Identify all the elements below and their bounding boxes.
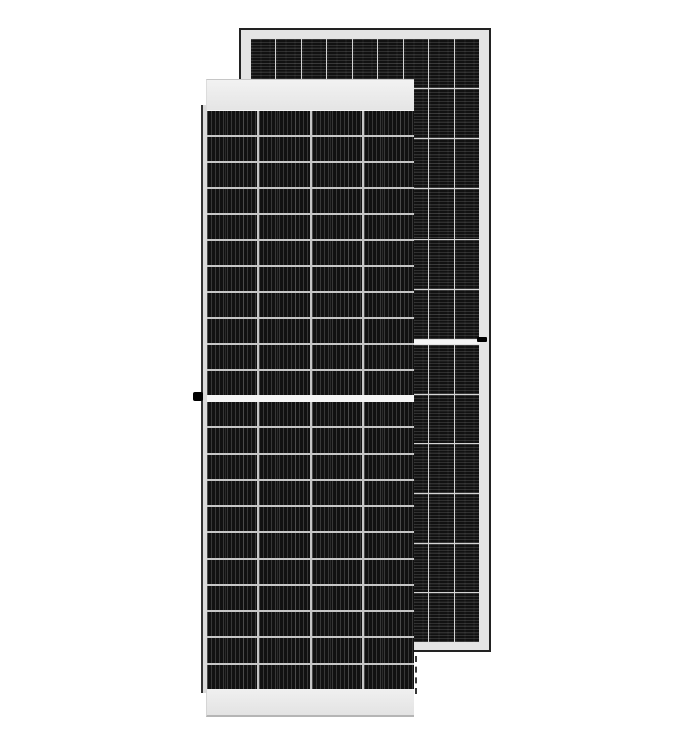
front-solar-panel xyxy=(201,79,414,717)
solar-cell xyxy=(207,560,257,584)
solar-cell xyxy=(259,345,309,369)
solar-cell xyxy=(259,189,309,213)
solar-cell xyxy=(429,139,453,188)
solar-cell xyxy=(429,89,453,138)
solar-cell xyxy=(259,163,309,187)
solar-cell xyxy=(312,371,362,395)
solar-cell xyxy=(364,293,414,317)
solar-cell xyxy=(312,560,362,584)
solar-cell xyxy=(207,319,257,343)
solar-cell xyxy=(207,189,257,213)
solar-cell xyxy=(259,402,309,426)
solar-cell xyxy=(259,507,309,531)
solar-cell xyxy=(364,319,414,343)
solar-cell xyxy=(207,371,257,395)
solar-cell xyxy=(455,189,479,238)
solar-cell xyxy=(259,215,309,239)
solar-cell xyxy=(455,89,479,138)
solar-cell xyxy=(364,481,414,505)
solar-cell xyxy=(364,428,414,452)
solar-cell xyxy=(259,137,309,161)
solar-cell xyxy=(364,241,414,265)
solar-cell xyxy=(312,189,362,213)
solar-cell xyxy=(364,163,414,187)
solar-cell xyxy=(312,586,362,610)
front-panel-lower-half xyxy=(207,402,414,689)
edge-shadow-dashes xyxy=(415,656,417,694)
solar-cell xyxy=(455,345,479,394)
solar-cell xyxy=(259,638,309,662)
solar-cell xyxy=(364,533,414,557)
solar-cell xyxy=(455,39,479,88)
solar-cell xyxy=(312,665,362,689)
solar-cell xyxy=(455,395,479,444)
solar-cell xyxy=(364,215,414,239)
junction-tick-marker xyxy=(477,337,487,342)
grounding-lug-marker xyxy=(193,392,203,401)
solar-cell xyxy=(312,137,362,161)
front-panel-upper-half xyxy=(207,111,414,395)
solar-cell xyxy=(429,544,453,593)
solar-cell xyxy=(312,481,362,505)
solar-cell xyxy=(429,39,453,88)
solar-cell xyxy=(312,163,362,187)
solar-cell xyxy=(312,638,362,662)
solar-cell xyxy=(207,137,257,161)
solar-cell xyxy=(207,455,257,479)
solar-cell xyxy=(312,428,362,452)
solar-cell xyxy=(312,533,362,557)
solar-cell xyxy=(364,665,414,689)
solar-cell xyxy=(207,345,257,369)
solar-cell xyxy=(364,455,414,479)
solar-cell xyxy=(364,638,414,662)
solar-cell xyxy=(207,533,257,557)
solar-cell xyxy=(312,215,362,239)
solar-cell xyxy=(429,240,453,289)
solar-cell xyxy=(429,290,453,339)
solar-cell xyxy=(364,402,414,426)
solar-cell xyxy=(259,481,309,505)
solar-cell xyxy=(259,111,309,135)
solar-cell xyxy=(312,402,362,426)
solar-cell xyxy=(259,455,309,479)
solar-cell xyxy=(207,293,257,317)
solar-cell xyxy=(207,402,257,426)
solar-cell xyxy=(312,612,362,636)
product-photo-canvas xyxy=(0,0,684,748)
solar-cell xyxy=(429,494,453,543)
solar-cell xyxy=(259,665,309,689)
solar-cell xyxy=(455,544,479,593)
solar-cell xyxy=(259,241,309,265)
solar-cell xyxy=(364,111,414,135)
solar-cell xyxy=(207,215,257,239)
solar-cell xyxy=(207,163,257,187)
solar-cell xyxy=(364,137,414,161)
solar-cell xyxy=(364,612,414,636)
solar-cell xyxy=(207,586,257,610)
front-panel-top-frame-rail xyxy=(206,79,414,110)
solar-cell xyxy=(207,638,257,662)
solar-cell xyxy=(259,533,309,557)
solar-cell xyxy=(259,371,309,395)
solar-cell xyxy=(312,267,362,291)
solar-cell xyxy=(455,444,479,493)
solar-cell xyxy=(455,290,479,339)
solar-cell xyxy=(312,111,362,135)
solar-cell xyxy=(312,345,362,369)
solar-cell xyxy=(429,593,453,642)
solar-cell xyxy=(312,241,362,265)
solar-cell xyxy=(207,481,257,505)
solar-cell xyxy=(312,455,362,479)
solar-cell xyxy=(207,241,257,265)
solar-cell xyxy=(207,267,257,291)
solar-cell xyxy=(455,139,479,188)
solar-cell xyxy=(207,665,257,689)
solar-cell xyxy=(429,189,453,238)
solar-cell xyxy=(259,428,309,452)
solar-cell xyxy=(364,345,414,369)
solar-cell xyxy=(455,240,479,289)
solar-cell xyxy=(259,267,309,291)
solar-cell xyxy=(364,507,414,531)
front-panel-bottom-frame-rail xyxy=(206,689,414,717)
solar-cell xyxy=(364,189,414,213)
front-panel-center-gap xyxy=(207,395,414,402)
solar-cell xyxy=(364,267,414,291)
solar-cell xyxy=(259,586,309,610)
solar-cell xyxy=(364,586,414,610)
front-panel-cell-area xyxy=(207,110,414,689)
solar-cell xyxy=(259,319,309,343)
solar-cell xyxy=(429,444,453,493)
solar-cell xyxy=(429,345,453,394)
solar-cell xyxy=(207,507,257,531)
solar-cell xyxy=(259,612,309,636)
solar-cell xyxy=(259,560,309,584)
solar-cell xyxy=(364,371,414,395)
solar-cell xyxy=(429,395,453,444)
solar-cell xyxy=(207,428,257,452)
solar-cell xyxy=(455,593,479,642)
solar-cell xyxy=(364,560,414,584)
solar-cell xyxy=(259,293,309,317)
solar-cell xyxy=(207,612,257,636)
solar-cell xyxy=(455,494,479,543)
solar-cell xyxy=(312,507,362,531)
solar-cell xyxy=(312,319,362,343)
solar-cell xyxy=(312,293,362,317)
solar-cell xyxy=(207,111,257,135)
